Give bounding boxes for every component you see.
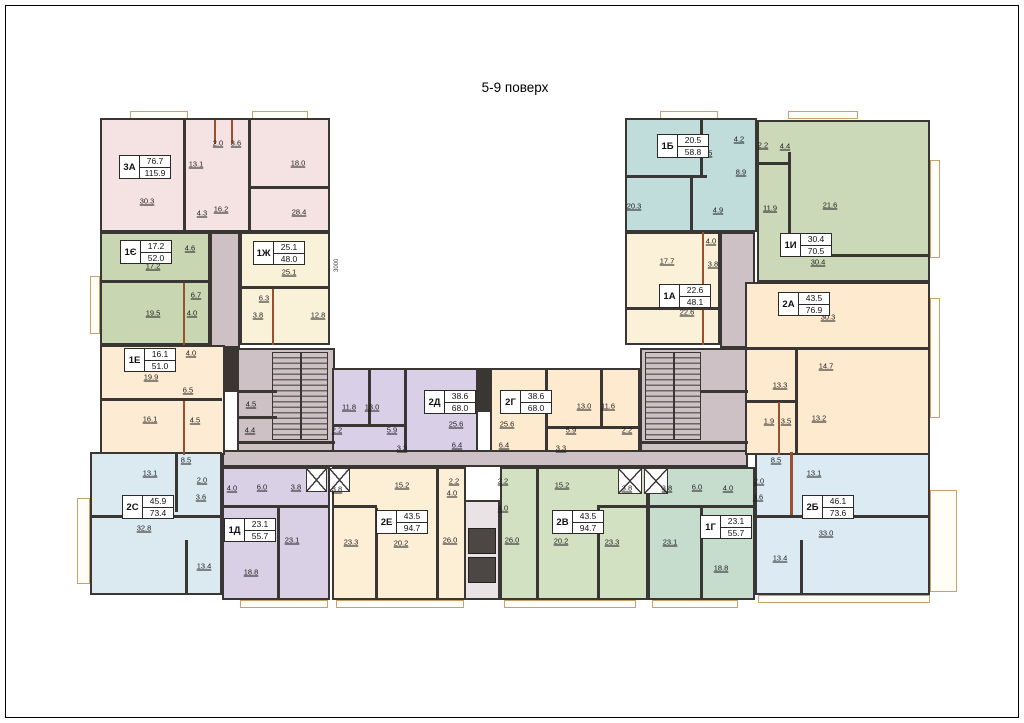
room-area: 23.3: [605, 538, 620, 547]
elevator-car: [468, 557, 496, 583]
interior-wall: [222, 505, 330, 508]
apartment-areas: 17.252.0: [140, 241, 171, 263]
room-area: 23.1: [663, 538, 678, 547]
apartment-area-total: 48.0: [274, 254, 304, 265]
room-area: 26.0: [443, 536, 458, 545]
apartment-area-living: 25.1: [274, 242, 304, 254]
apartment-label: 1А22.648.1: [659, 284, 711, 308]
apartment-area-living: 23.1: [245, 519, 275, 531]
room-area: 25.1: [282, 268, 297, 277]
interior-wall: [272, 289, 274, 345]
room-area: 19.9: [144, 373, 159, 382]
room-area: 15.2: [395, 481, 410, 490]
room-area: 25.6: [449, 420, 464, 429]
apartment-area-living: 76.7: [140, 156, 170, 168]
room-area: 4.9: [713, 206, 723, 215]
apartment-label: 1И30.470.5: [780, 233, 832, 257]
room-area: 13.1: [143, 469, 158, 478]
room-area: 25.6: [500, 420, 515, 429]
room-area: 16.1: [143, 415, 158, 424]
interior-wall: [183, 401, 185, 455]
room-area: 3.3: [556, 444, 566, 453]
interior-wall: [248, 120, 251, 232]
apartment-area-total: 70.5: [801, 246, 831, 257]
apartment-area-living: 46.1: [823, 496, 853, 508]
interior-wall: [745, 347, 930, 350]
apartment-area-living: 43.5: [397, 511, 427, 523]
apartment-area-total: 52.0: [141, 253, 171, 264]
apartment-areas: 30.470.5: [800, 234, 831, 256]
room-area: 2.2: [449, 477, 459, 486]
room-area: 6.0: [257, 483, 267, 492]
interior-wall: [183, 120, 186, 232]
interior-wall: [277, 508, 280, 600]
apartment-14-area: [745, 282, 930, 455]
elevator-car: [468, 528, 496, 554]
room-area: 15.2: [555, 481, 570, 490]
apartment-label: 2С45.973.4: [122, 495, 174, 519]
room-area: 3.3: [397, 444, 407, 453]
apartment-area-living: 20.5: [678, 135, 708, 147]
interior-wall: [478, 368, 490, 412]
room-area: 8.9: [736, 168, 746, 177]
interior-wall: [237, 390, 277, 393]
apartment-id: 1Е: [125, 349, 144, 371]
apartment-area-total: 68.0: [521, 403, 551, 414]
room-area: 3.8: [253, 311, 263, 320]
corridor-room-area: 4.5: [246, 400, 256, 409]
room-area: 13.0: [577, 402, 592, 411]
balcony: [788, 111, 858, 119]
balcony: [758, 595, 930, 603]
room-area: 11.8: [342, 403, 356, 412]
floor-plan-sheet: 5-9 поверх 3А76.7115.930.313.12.03.618.0…: [0, 0, 1024, 723]
room-area: 33.0: [819, 529, 834, 538]
apartment-area-total: 55.7: [245, 531, 275, 542]
apartment-id: 2С: [123, 496, 142, 518]
room-area: 6.3: [259, 294, 269, 303]
stairs-icon: [272, 352, 328, 440]
room-area: 3.8: [291, 483, 301, 492]
balcony: [930, 160, 940, 258]
apartment-label: 3А76.7115.9: [119, 155, 171, 179]
balcony: [336, 600, 464, 608]
apartment-label: 1Є17.252.0: [120, 240, 172, 264]
room-area: 13.2: [812, 414, 827, 423]
apartment-id: 1Є: [121, 241, 140, 263]
apartment-id: 3А: [120, 156, 139, 178]
room-area: 8.5: [181, 456, 191, 465]
apartment-12-area: [755, 452, 930, 595]
room-area: 18.8: [714, 564, 729, 573]
apartment-id: 1Д: [225, 519, 244, 541]
apartment-area-living: 22.6: [680, 285, 710, 297]
apartment-area-living: 43.5: [799, 293, 829, 305]
interior-wall: [100, 280, 208, 283]
apartment-areas: 38.668.0: [520, 391, 551, 413]
room-area: 17.7: [660, 257, 675, 266]
interior-wall: [237, 416, 277, 419]
balcony: [504, 600, 636, 608]
room-area: 26.0: [505, 536, 520, 545]
interior-wall: [368, 368, 371, 424]
room-area: 4.3: [197, 209, 207, 218]
interior-wall: [237, 441, 335, 444]
room-area: 6.0: [692, 483, 702, 492]
room-area: 4.0: [186, 349, 196, 358]
room-area: 5.9: [387, 426, 397, 435]
apartment-area-living: 16.1: [145, 349, 175, 361]
interior-wall: [757, 162, 789, 165]
apartment-id: 1Б: [658, 135, 677, 157]
room-area: 2.2: [332, 426, 342, 435]
apartment-label: 2Б46.173.6: [802, 495, 854, 519]
room-area: 14.7: [819, 362, 834, 371]
room-area: 2.2: [622, 426, 632, 435]
interior-wall: [790, 452, 793, 515]
room-area: 3.6: [196, 493, 206, 502]
apartment-area-total: 76.9: [799, 305, 829, 316]
interior-wall: [185, 540, 188, 595]
apartment-areas: 22.648.1: [679, 285, 710, 307]
apartment-areas: 20.558.8: [677, 135, 708, 157]
apartment-area-living: 38.6: [521, 391, 551, 403]
balcony: [90, 276, 100, 334]
apartment-area-total: 94.7: [397, 523, 427, 534]
apartment-area-total: 58.8: [678, 147, 708, 158]
room-area: 1.9: [764, 417, 774, 426]
dimension-label: 3000: [334, 259, 340, 272]
apartment-id: 2А: [779, 293, 798, 315]
room-area: 13.4: [773, 554, 788, 563]
apartment-label: 1Г23.155.7: [700, 515, 752, 539]
apartment-id: 2Г: [501, 391, 520, 413]
apartment-id: 2Е: [377, 511, 396, 533]
interior-wall: [225, 348, 237, 392]
interior-wall: [600, 368, 603, 426]
corridor: [210, 232, 240, 348]
room-area: 3.8: [332, 485, 342, 494]
apartment-area-living: 43.5: [573, 511, 603, 523]
apartment-area-living: 30.4: [801, 234, 831, 246]
room-area: 22.6: [680, 308, 695, 317]
apartment-label: 2В43.594.7: [552, 510, 604, 534]
interior-wall: [436, 467, 439, 600]
apartment-label: 1Б20.558.8: [657, 134, 709, 158]
apartment-areas: 46.173.6: [822, 496, 853, 518]
room-area: 4.4: [780, 142, 790, 151]
room-area: 23.1: [285, 536, 300, 545]
floor-title: 5-9 поверх: [447, 80, 583, 95]
apartment-id: 2В: [553, 511, 572, 533]
interior-wall: [690, 177, 693, 232]
apartment-areas: 43.576.9: [798, 293, 829, 315]
balcony: [77, 498, 90, 584]
apartment-area-total: 115.9: [140, 168, 170, 179]
corridor-room-area: 4.4: [245, 426, 255, 435]
interior-wall: [625, 175, 707, 178]
interior-wall: [536, 467, 539, 600]
room-area: 3.8: [622, 484, 632, 493]
apartment-area-living: 38.6: [445, 391, 475, 403]
apartment-area-total: 48.1: [680, 297, 710, 308]
apartment-area-total: 51.0: [145, 361, 175, 372]
room-area: 4.0: [227, 484, 237, 493]
apartment-label: 2А43.576.9: [778, 292, 830, 316]
room-area: 13.0: [365, 403, 380, 412]
room-area: 20.3: [627, 202, 642, 211]
apartment-areas: 76.7115.9: [139, 156, 170, 178]
room-area: 20.2: [554, 537, 569, 546]
corridor: [222, 450, 748, 467]
room-area: 12.8: [311, 311, 326, 320]
room-area: 13.1: [807, 469, 822, 478]
apartment-id: 1Г: [701, 516, 720, 538]
room-area: 4.5: [190, 416, 200, 425]
room-area: 16.2: [214, 205, 229, 214]
room-area: 30.4: [811, 258, 826, 267]
apartment-area-total: 55.7: [721, 528, 751, 539]
room-area: 6.4: [452, 441, 462, 450]
apartment-areas: 23.155.7: [720, 516, 751, 538]
room-area: 11.9: [763, 204, 777, 213]
interior-wall: [332, 505, 377, 508]
room-area: 4.0: [706, 237, 716, 246]
room-area: 13.3: [773, 381, 788, 390]
apartment-id: 2Б: [803, 496, 822, 518]
balcony: [930, 298, 940, 418]
room-area: 3.8: [662, 484, 672, 493]
room-area: 18.8: [244, 568, 259, 577]
interior-wall: [745, 400, 797, 403]
room-area: 3.5: [781, 417, 791, 426]
apartment-area-living: 23.1: [721, 516, 751, 528]
vent-shaft-icon: [306, 468, 327, 492]
apartment-areas: 25.148.0: [273, 242, 304, 264]
room-area: 2.2: [498, 477, 508, 486]
room-area: 2.0: [197, 476, 207, 485]
room-area: 4.0: [498, 504, 508, 513]
apartment-id: 2Д: [425, 391, 444, 413]
interior-wall: [597, 505, 647, 508]
room-area: 4.0: [723, 484, 733, 493]
interior-wall: [251, 186, 330, 189]
room-area: 2.0: [754, 477, 764, 486]
balcony: [240, 600, 328, 608]
apartment-id: 1Ж: [254, 242, 273, 264]
apartment-label: 1Ж25.148.0: [253, 241, 305, 265]
balcony: [652, 600, 738, 608]
room-area: 13.4: [197, 562, 212, 571]
apartment-label: 1Е16.151.0: [124, 348, 176, 372]
interior-wall: [800, 540, 803, 595]
apartment-label: 1Д23.155.7: [224, 518, 276, 542]
apartment-areas: 16.151.0: [144, 349, 175, 371]
interior-wall: [404, 368, 407, 452]
interior-wall: [175, 452, 178, 512]
interior-wall: [100, 398, 222, 401]
stairs-icon: [645, 352, 701, 440]
room-area: 11.6: [601, 402, 615, 411]
apartment-areas: 43.594.7: [572, 511, 603, 533]
apartment-area-living: 17.2: [141, 241, 171, 253]
room-area: 2.2: [758, 141, 768, 150]
room-area: 28.4: [292, 208, 307, 217]
room-area: 23.3: [344, 538, 359, 547]
room-area: 6.7: [191, 291, 201, 300]
room-area: 20.2: [394, 539, 409, 548]
apartment-area-total: 73.6: [823, 508, 853, 519]
room-area: 4.0: [447, 489, 457, 498]
apartment-areas: 38.668.0: [444, 391, 475, 413]
room-area: 4.6: [185, 244, 195, 253]
apartment-areas: 23.155.7: [244, 519, 275, 541]
apartment-areas: 45.973.4: [142, 496, 173, 518]
interior-wall: [700, 390, 748, 393]
room-area: 6.4: [499, 441, 509, 450]
room-area: 2.0: [213, 139, 223, 148]
apartment-id: 1И: [781, 234, 800, 256]
room-area: 3.6: [231, 139, 241, 148]
interior-wall: [778, 402, 780, 455]
apartment-label: 2Д38.668.0: [424, 390, 476, 414]
room-area: 6.5: [183, 386, 193, 395]
apartment-area-total: 68.0: [445, 403, 475, 414]
room-area: 13.1: [189, 160, 204, 169]
room-area: 8.5: [771, 456, 781, 465]
room-area: 21.6: [823, 201, 838, 210]
apartment-area-total: 94.7: [573, 523, 603, 534]
apartment-label: 2Г38.668.0: [500, 390, 552, 414]
interior-wall: [640, 441, 748, 444]
room-area: 4.0: [187, 309, 197, 318]
apartment-area-living: 45.9: [143, 496, 173, 508]
interior-wall: [183, 283, 185, 345]
room-area: 3.6: [753, 493, 763, 502]
room-area: 19.5: [146, 309, 161, 318]
room-area: 3.8: [708, 260, 718, 269]
room-area: 32.8: [137, 524, 152, 533]
interior-wall: [240, 286, 328, 289]
room-area: 4.2: [734, 135, 744, 144]
room-area: 18.0: [291, 159, 306, 168]
room-area: 5.9: [566, 426, 576, 435]
apartment-area-total: 73.4: [143, 508, 173, 519]
apartment-id: 1А: [660, 285, 679, 307]
apartment-areas: 43.594.7: [396, 511, 427, 533]
apartment-label: 2Е43.594.7: [376, 510, 428, 534]
balcony: [930, 490, 957, 592]
room-area: 30.3: [140, 197, 155, 206]
